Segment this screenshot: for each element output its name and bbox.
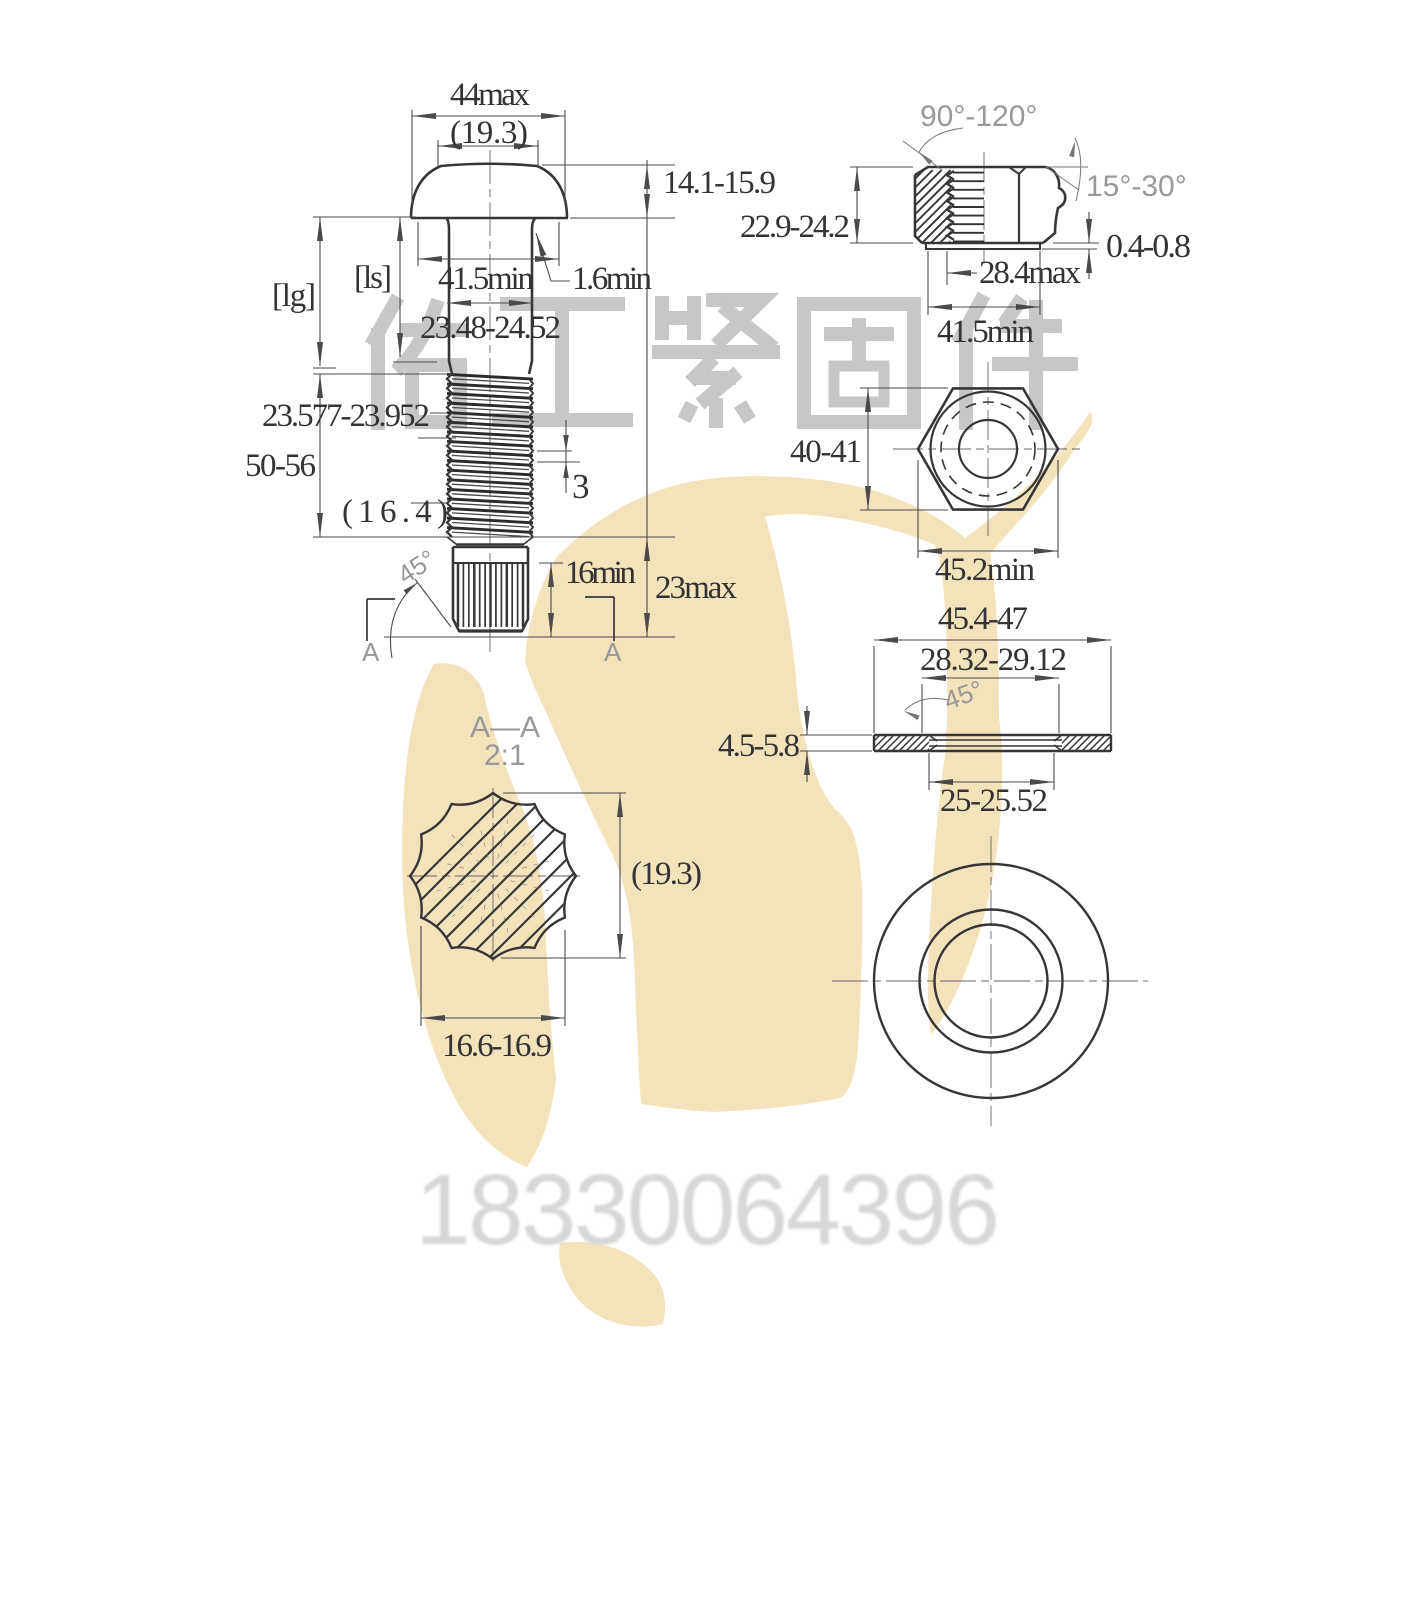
svg-text:41.5min: 41.5min [438,261,534,297]
svg-text:23.48-24.52: 23.48-24.52 [420,310,561,346]
svg-text:45.4-47: 45.4-47 [938,601,1028,637]
svg-text:3: 3 [572,467,590,506]
svg-text:16min: 16min [565,555,636,591]
svg-text:25-25.52: 25-25.52 [940,783,1048,819]
svg-text:90°-120°: 90°-120° [920,100,1037,133]
svg-text:2:1: 2:1 [484,739,526,772]
svg-text:14.1-15.9: 14.1-15.9 [663,165,776,201]
svg-text:1.6min: 1.6min [572,261,652,297]
svg-text:45.2min: 45.2min [935,552,1035,588]
svg-text:44max: 44max [450,77,531,113]
svg-text:41.5min: 41.5min [937,314,1034,350]
svg-text:4.5-5.8: 4.5-5.8 [718,728,800,764]
svg-text:A: A [362,637,380,667]
svg-text:23max: 23max [655,570,738,606]
svg-text:28.4max: 28.4max [979,255,1082,291]
svg-text:40-41: 40-41 [790,434,862,470]
svg-text:18330064396: 18330064396 [415,1154,1000,1266]
svg-text:22.9-24.2: 22.9-24.2 [740,209,850,245]
svg-text:23.577-23.952: 23.577-23.952 [262,398,430,434]
svg-text:15°-30°: 15°-30° [1086,170,1187,203]
svg-text:0.4-0.8: 0.4-0.8 [1106,228,1191,265]
svg-text:16.6-16.9: 16.6-16.9 [442,1028,552,1064]
svg-text:(19.3): (19.3) [631,856,702,892]
svg-text:28.32-29.12: 28.32-29.12 [920,642,1067,678]
svg-text:[lg]: [lg] [272,278,316,314]
svg-text:A: A [604,637,622,667]
svg-text:(19.3): (19.3) [450,115,528,151]
svg-text:[ls]: [ls] [354,260,392,296]
svg-text:50-56: 50-56 [245,448,316,484]
